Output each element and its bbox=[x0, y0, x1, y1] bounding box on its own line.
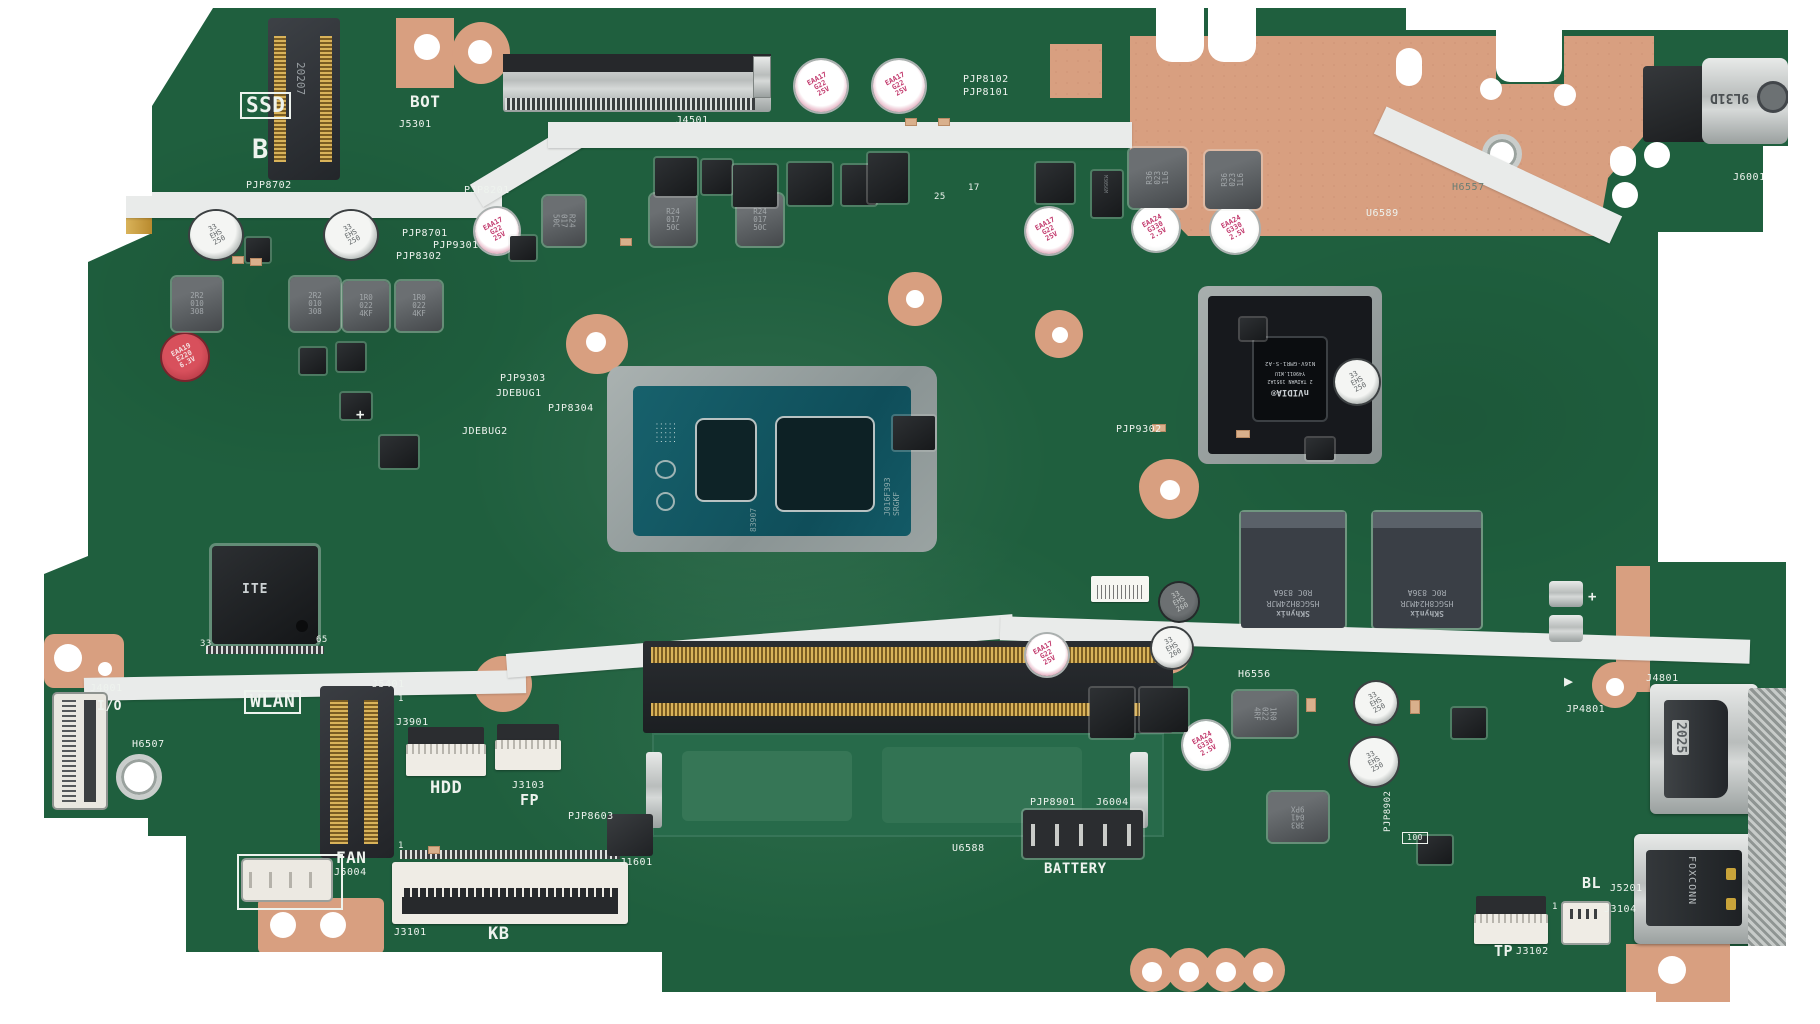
inductor-r36: R36 023 1L6 bbox=[1205, 151, 1261, 209]
hdd-connector-body bbox=[406, 744, 486, 776]
inductor-1r0b: 1R0 022 4RF bbox=[1233, 691, 1297, 737]
label-u6588: U6588 bbox=[952, 844, 985, 854]
label-pjp8304: PJP8304 bbox=[548, 404, 594, 414]
wlan-pins bbox=[330, 700, 348, 844]
label-fp: FP bbox=[520, 793, 539, 808]
dc-jack-barrel: 9L31D bbox=[1702, 58, 1788, 144]
ic bbox=[1306, 438, 1334, 460]
screw-hole bbox=[906, 290, 924, 308]
mount-hole bbox=[1253, 962, 1273, 982]
port-shield-mesh bbox=[1748, 688, 1790, 964]
gpu-die: nVIDIA® 2 TAIWAN 1951A2 Y49011.W1U N16V-… bbox=[1254, 338, 1326, 420]
label-25: 25 bbox=[934, 193, 946, 202]
label-j4801: J4801 bbox=[1646, 674, 1679, 684]
capacitor-eaa24: EAA24 G330 2.5V bbox=[1211, 205, 1259, 253]
fan-connector bbox=[243, 860, 331, 900]
capacitor-eaa19: EAA19 E220 6.3V bbox=[162, 334, 208, 380]
label-pjp9302: PJP9302 bbox=[1116, 425, 1162, 435]
ic bbox=[893, 416, 935, 450]
label-bl: BL bbox=[1582, 876, 1601, 891]
mount-hole bbox=[1658, 956, 1686, 984]
label-j3104: J3104 bbox=[1604, 905, 1637, 915]
label-plus: + bbox=[356, 408, 365, 422]
screw-hole bbox=[1052, 327, 1068, 343]
label-pjp8701: PJP8701 bbox=[402, 229, 448, 239]
hdmi-port: 2025 bbox=[1650, 684, 1758, 814]
capacitor-eaa24: EAA24 G330 2.5V bbox=[1183, 721, 1229, 769]
ic bbox=[1452, 708, 1486, 738]
wlan-pins bbox=[364, 700, 378, 844]
label-bot: BOT bbox=[410, 94, 440, 110]
copper-pad-dotted bbox=[1050, 44, 1102, 98]
mount-hole bbox=[320, 912, 346, 938]
inductor-3r3: 3R3 041 9PX bbox=[1268, 792, 1328, 842]
gpu-lot: Y49011.W1U bbox=[1275, 371, 1305, 377]
resistor bbox=[250, 258, 262, 266]
inductor-r36: R36 023 1L6 bbox=[1129, 148, 1187, 208]
ic bbox=[655, 158, 697, 196]
ec-brand: ITE bbox=[242, 582, 268, 597]
resistor bbox=[1236, 430, 1250, 438]
ic bbox=[380, 436, 418, 468]
usb-port-marking: FOXCONN bbox=[1686, 856, 1697, 905]
resistor bbox=[620, 238, 632, 246]
thermal-tape bbox=[84, 670, 526, 701]
ic bbox=[1036, 163, 1074, 203]
lvds-pins bbox=[505, 98, 755, 110]
ic bbox=[1240, 318, 1266, 340]
ic bbox=[300, 348, 326, 374]
mosfet-marking: M3056M bbox=[1102, 175, 1108, 193]
label-j6001: J6001 bbox=[1733, 173, 1766, 183]
inductor-r24: R24 017 50C bbox=[543, 196, 585, 246]
label-fan: FAN bbox=[336, 850, 366, 866]
label-pjp8902: PJP8902 bbox=[1384, 791, 1393, 832]
cpu-die-small bbox=[697, 420, 755, 500]
ssd-slot-pins bbox=[320, 36, 332, 162]
label-hdd: HDD bbox=[430, 780, 462, 797]
sodimm-pins bbox=[651, 647, 1165, 663]
label-io: I/O bbox=[97, 700, 122, 713]
screw-ring-h6507 bbox=[116, 754, 162, 800]
vram-chip: SKhynix H5GC8H24MJR R0C 836A bbox=[1373, 512, 1481, 628]
lvds-connector bbox=[503, 54, 771, 112]
screw-hole bbox=[1606, 678, 1624, 696]
pin1-marker: 1 bbox=[1552, 903, 1558, 912]
mount-hole bbox=[1142, 962, 1162, 982]
kb-connector bbox=[392, 862, 628, 924]
vram-lot: R0C 836A bbox=[1245, 587, 1341, 597]
label-pjp8102: PJP8102 bbox=[963, 75, 1009, 85]
label-100: 100 bbox=[1402, 832, 1428, 844]
cpu-datamatrix bbox=[655, 422, 677, 444]
label-17: 17 bbox=[968, 184, 980, 193]
ec-pins-bottom bbox=[206, 646, 324, 654]
hinge-hole bbox=[54, 644, 82, 672]
edge-cutout bbox=[1156, 0, 1204, 62]
vram-brand: SKhynix bbox=[1245, 608, 1341, 618]
label-h6507: H6507 bbox=[132, 740, 165, 750]
wlan-slot bbox=[320, 686, 394, 858]
inductor-1r0: 1R0 022 4KF bbox=[396, 281, 442, 331]
mount-hole bbox=[1179, 962, 1199, 982]
capacitor-eaa17: EAA17 G22 25V bbox=[873, 60, 925, 112]
capacitor-eaa24: EAA24 G330 2.5V bbox=[1133, 205, 1179, 251]
label-j1601: J1601 bbox=[620, 858, 653, 868]
cpu-code: 83907 bbox=[749, 508, 758, 532]
label-jdebug2: JDEBUG2 bbox=[462, 427, 508, 437]
capacitor-33ehs250: 33 EHS 250 bbox=[190, 211, 242, 259]
capacitor-eaa17: EAA17 G22 25V bbox=[1026, 208, 1072, 254]
motherboard-photo: 20207 9L31D J016F393 SRGKF 83907 bbox=[0, 0, 1820, 1024]
dc-jack-marking: 9L31D bbox=[1710, 90, 1749, 105]
capacitor-33ehs250: 33 EHS 250 bbox=[325, 211, 377, 259]
thermal-tape bbox=[548, 122, 1132, 148]
plus-mark: + bbox=[1588, 590, 1597, 604]
label-h6556: H6556 bbox=[1238, 670, 1271, 680]
label-pjp8302: PJP8302 bbox=[396, 252, 442, 262]
label-pjp8702: PJP8702 bbox=[246, 181, 292, 191]
ic bbox=[702, 160, 732, 194]
resistor bbox=[232, 256, 244, 264]
battery-terminal bbox=[1549, 615, 1583, 642]
screw-hole bbox=[1160, 480, 1180, 500]
mount-hole bbox=[270, 912, 296, 938]
label-pjp9301: PJP9301 bbox=[433, 241, 479, 251]
gpu-origin: 2 TAIWAN 1951A2 bbox=[1267, 379, 1312, 385]
label-jp4801: JP4801 bbox=[1566, 705, 1605, 715]
label-tp: TP bbox=[1494, 944, 1513, 959]
edge-cutout bbox=[1496, 0, 1562, 82]
ic bbox=[337, 343, 365, 371]
label-j4501: J4501 bbox=[676, 116, 709, 126]
label-ssd: SSD bbox=[240, 92, 291, 119]
hdmi-port-marking: 2025 bbox=[1672, 720, 1689, 755]
label-pjp9303: PJP9303 bbox=[500, 374, 546, 384]
vram-chip: SKhynix H5GC8H24MJR R0C 836A bbox=[1241, 512, 1345, 628]
label-pjp8901: PJP8901 bbox=[1030, 798, 1076, 808]
ic bbox=[868, 153, 908, 203]
vram-brand: SKhynix bbox=[1377, 608, 1477, 618]
ic bbox=[510, 236, 536, 260]
inductor-2r2: 2R2 010 308 bbox=[290, 277, 340, 331]
resistor bbox=[1306, 698, 1316, 712]
label-j4001: J4001 bbox=[90, 684, 123, 694]
ic bbox=[1140, 688, 1188, 732]
label-j6004: J6004 bbox=[1096, 798, 1129, 808]
label-jdebug1: JDEBUG1 bbox=[496, 389, 542, 399]
label-b: B bbox=[252, 136, 269, 163]
vram-lot: R0C 836A bbox=[1377, 587, 1477, 597]
mount-hole bbox=[1554, 84, 1576, 106]
label-wlan: WLAN bbox=[244, 690, 301, 714]
mount-hole bbox=[1610, 146, 1636, 176]
mount-hole bbox=[1216, 962, 1236, 982]
inductor-r24: R24 017 50C bbox=[650, 194, 696, 246]
gpu-model: N16V-GMR1-S-A2 bbox=[1265, 361, 1316, 367]
capacitor-33ehs250: 33 EHS 250 bbox=[1350, 738, 1398, 786]
j3104-connector bbox=[1563, 903, 1609, 943]
gpu-brand: nVIDIA® bbox=[1271, 388, 1309, 398]
ic-mosfet: M3056M bbox=[1092, 171, 1122, 217]
label-kb: KB bbox=[488, 926, 509, 943]
mount-hole bbox=[1480, 78, 1502, 100]
screw-hole bbox=[586, 332, 606, 352]
label-battery: BATTERY bbox=[1044, 862, 1107, 876]
resistor bbox=[428, 846, 440, 854]
mount-hole bbox=[1396, 48, 1422, 86]
barcode-label bbox=[1091, 576, 1149, 602]
label-j5301: J5301 bbox=[399, 120, 432, 130]
capacitor-33ehs250: 33 EHS 250 bbox=[1355, 682, 1397, 724]
pin1-marker: 1 bbox=[398, 695, 404, 704]
vram-model: H5GC8H24MJR bbox=[1245, 597, 1341, 607]
pin1-marker: 1 bbox=[398, 842, 404, 851]
label-j3103: J3103 bbox=[512, 781, 545, 791]
ec-chip: ITE bbox=[212, 546, 318, 644]
capacitor-33ehs260: 33 EHS 260 bbox=[1160, 583, 1198, 621]
sodimm-pins bbox=[651, 703, 1149, 716]
label-j3101: J3101 bbox=[394, 928, 427, 938]
label-j3102: J3102 bbox=[1516, 947, 1549, 957]
mount-hole bbox=[1612, 182, 1638, 208]
tp-connector-body bbox=[1474, 914, 1548, 944]
capacitor-33ehs260: 33 EHS 260 bbox=[1152, 628, 1192, 668]
ic bbox=[788, 163, 832, 205]
ssd-slot-marking: 20207 bbox=[294, 62, 307, 95]
dc-jack bbox=[1643, 66, 1707, 142]
ic bbox=[733, 165, 777, 207]
inductor-2r2: 2R2 010 308 bbox=[172, 277, 222, 331]
mount-hole bbox=[414, 34, 440, 60]
mount-hole bbox=[1644, 142, 1670, 168]
label-pjp8101: PJP8101 bbox=[963, 88, 1009, 98]
hinge-hole bbox=[98, 662, 112, 676]
fp-connector-body bbox=[495, 740, 561, 770]
capacitor-eaa17: EAA17 G22 25V bbox=[795, 60, 847, 112]
thermal-tape bbox=[86, 192, 502, 218]
label-h6557: H6557 bbox=[1452, 183, 1485, 193]
resistor bbox=[905, 118, 917, 126]
label-pjp8201: PJP8201 bbox=[464, 186, 510, 196]
label-j3901: J3901 bbox=[396, 718, 429, 728]
edge-cutout bbox=[1208, 0, 1256, 62]
vram-model: H5GC8H24MJR bbox=[1377, 597, 1477, 607]
label-j5004: J5004 bbox=[334, 868, 367, 878]
label-j5201: J5201 bbox=[1610, 884, 1643, 894]
cpu-marking: J016F393 SRGKF bbox=[883, 462, 901, 516]
resistor bbox=[938, 118, 950, 126]
mount-hole bbox=[468, 40, 492, 64]
battery-connector bbox=[1023, 810, 1143, 858]
cpu-circle-mark bbox=[655, 460, 676, 479]
cpu-package: J016F393 SRGKF 83907 bbox=[607, 366, 937, 552]
pcb-board: 20207 9L31D J016F393 SRGKF 83907 bbox=[0, 0, 1820, 1024]
resistor bbox=[1410, 700, 1420, 714]
battery-terminal bbox=[1549, 581, 1583, 607]
label-65: 65 bbox=[316, 636, 328, 645]
label-arrow: ▶ bbox=[1564, 674, 1574, 689]
inductor-1r0: 1R0 022 4KF bbox=[343, 281, 389, 331]
label-pjp8603: PJP8603 bbox=[568, 812, 614, 822]
cpu-die-large bbox=[777, 418, 873, 510]
label-j5401: J5401 bbox=[372, 680, 405, 690]
capacitor-33ehs250: 33 EHS 250 bbox=[1335, 360, 1379, 404]
label-u6589: U6589 bbox=[1366, 209, 1399, 219]
label-33: 33 bbox=[200, 640, 212, 649]
j1601-component bbox=[607, 814, 653, 856]
usb-port: FOXCONN bbox=[1634, 834, 1760, 944]
ic bbox=[1090, 688, 1134, 738]
capacitor-eaa17: EAA17 G22 25V bbox=[1026, 634, 1068, 676]
cpu-e1-mark bbox=[656, 492, 675, 511]
